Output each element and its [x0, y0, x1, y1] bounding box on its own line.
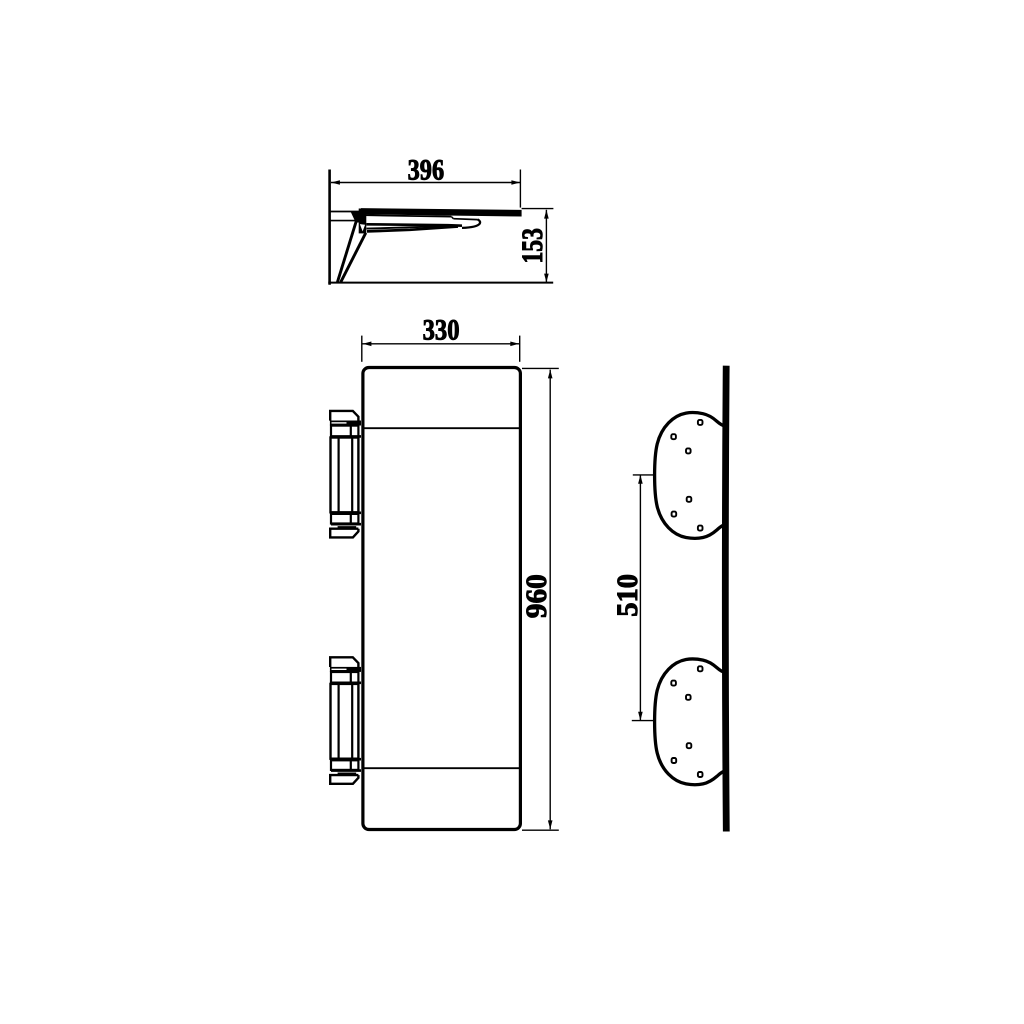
svg-text:960: 960 — [520, 574, 553, 618]
svg-text:330: 330 — [423, 314, 460, 347]
svg-text:153: 153 — [516, 228, 549, 263]
svg-text:396: 396 — [408, 154, 445, 187]
svg-text:510: 510 — [611, 574, 644, 617]
